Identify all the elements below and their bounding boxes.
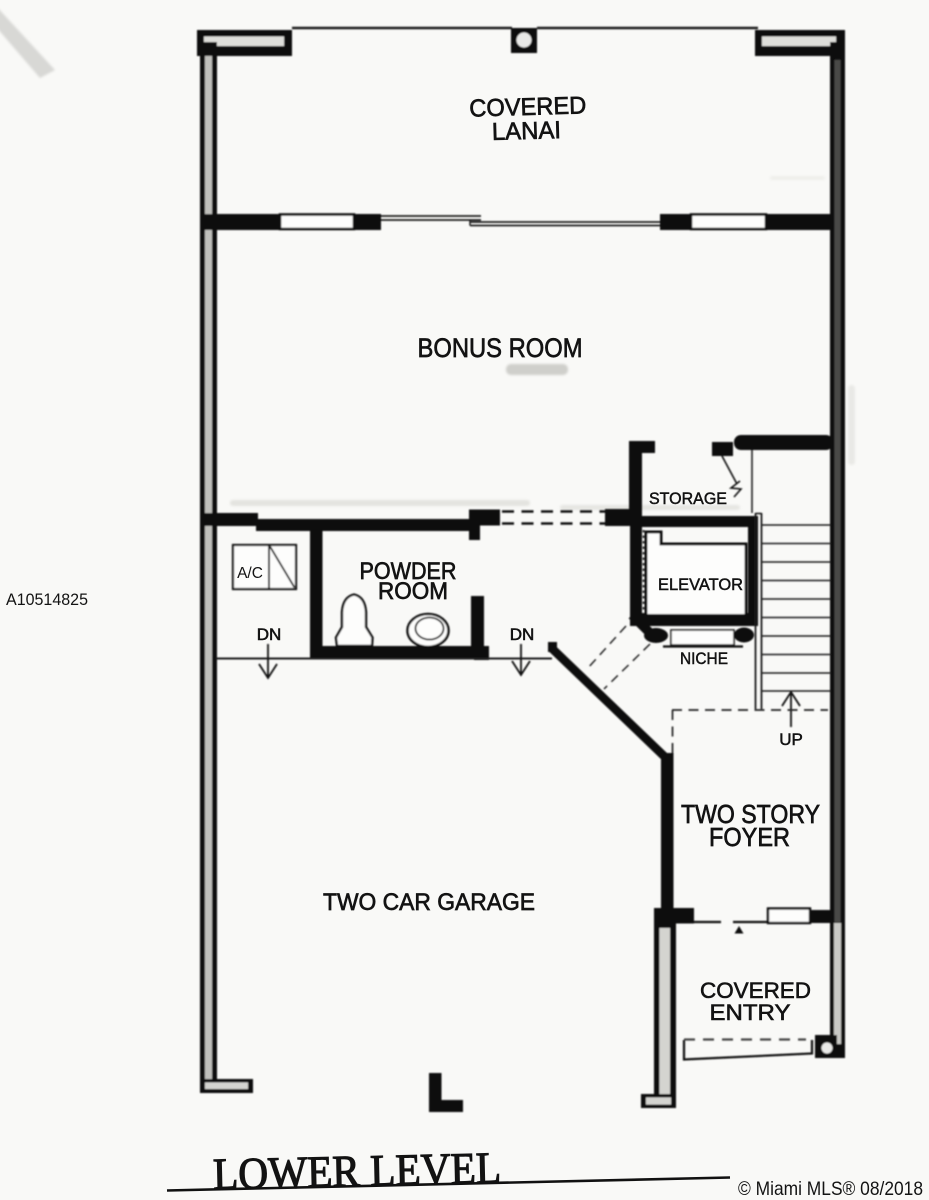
svg-text:STORAGE: STORAGE (649, 489, 727, 508)
svg-text:NICHE: NICHE (680, 649, 728, 668)
svg-text:DN: DN (510, 625, 535, 644)
svg-text:UP: UP (779, 730, 803, 749)
svg-text:BONUS ROOM: BONUS ROOM (418, 333, 583, 363)
svg-text:© Miami MLS® 08/2018: © Miami MLS® 08/2018 (738, 1178, 923, 1200)
svg-text:A/C: A/C (237, 565, 263, 582)
svg-text:ROOM: ROOM (378, 578, 448, 605)
svg-text:TWO CAR GARAGE: TWO CAR GARAGE (323, 889, 535, 916)
svg-text:A10514825: A10514825 (6, 591, 88, 609)
svg-text:ELEVATOR: ELEVATOR (658, 575, 743, 594)
svg-text:LANAI: LANAI (492, 117, 562, 146)
svg-text:FOYER: FOYER (709, 824, 790, 852)
svg-text:LOWER LEVEL: LOWER LEVEL (212, 1143, 501, 1200)
svg-text:ENTRY: ENTRY (710, 1000, 791, 1025)
svg-text:DN: DN (257, 625, 282, 644)
